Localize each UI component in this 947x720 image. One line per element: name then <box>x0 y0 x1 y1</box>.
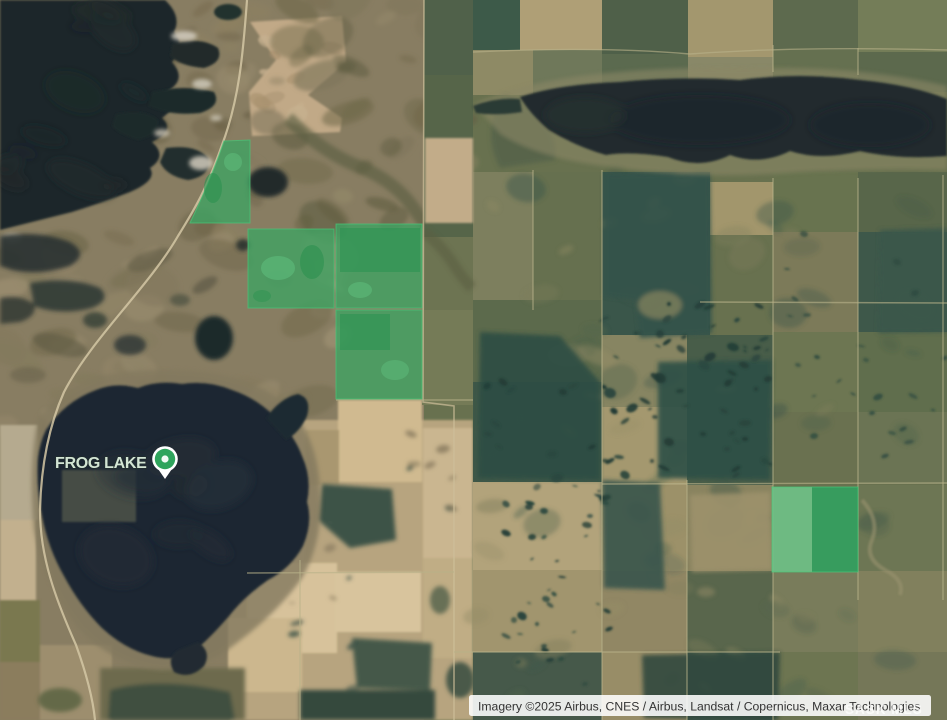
svg-text:FROG LAKE: FROG LAKE <box>55 455 147 472</box>
svg-text:SASK MLS: SASK MLS <box>845 702 923 717</box>
